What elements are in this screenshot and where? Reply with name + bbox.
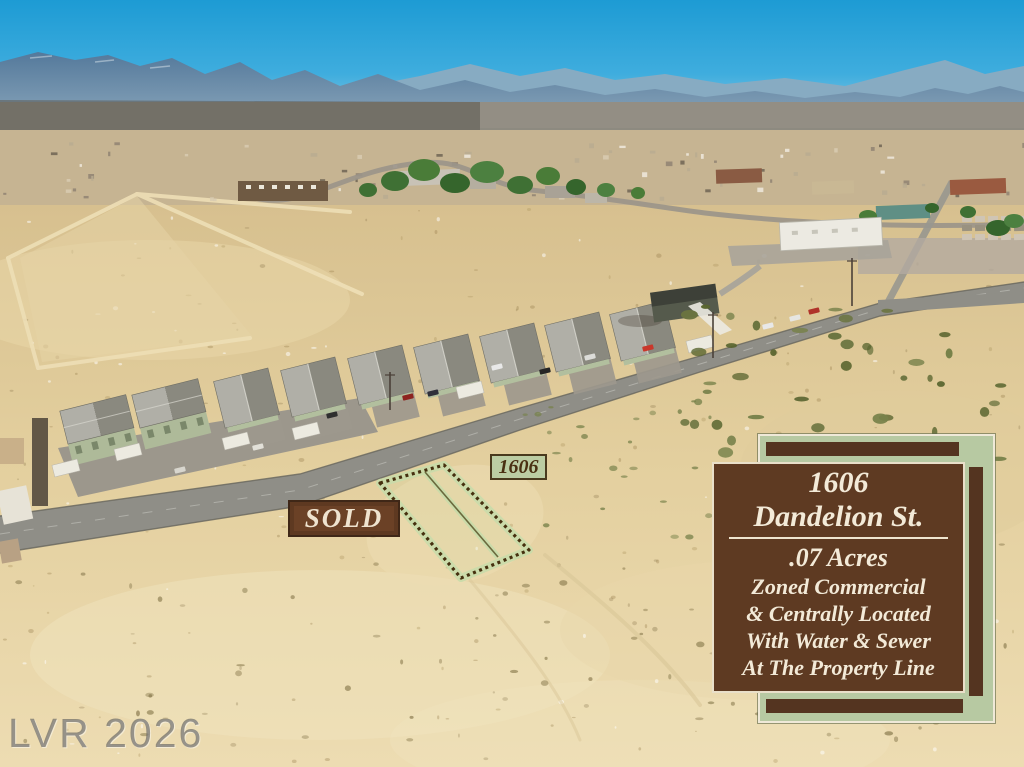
info-card-bar-top	[766, 442, 959, 456]
watermark: LVR 2026	[8, 710, 203, 757]
sold-label-text: SOLD	[305, 503, 384, 534]
parcel-number-label: 1606	[490, 454, 547, 480]
info-card-bar-bottom	[766, 699, 963, 713]
divider-rule	[729, 537, 948, 539]
detail-utilities-1: With Water & Sewer	[714, 627, 963, 654]
aerial-photo: LVR 2026 SOLD 1606 1606 Dandelion St. .0…	[0, 0, 1024, 767]
address-number: 1606	[714, 466, 963, 500]
detail-zoning: Zoned Commercial	[714, 573, 963, 600]
detail-utilities-2: At The Property Line	[714, 654, 963, 681]
detail-location: & Centrally Located	[714, 600, 963, 627]
sold-label: SOLD	[288, 500, 400, 537]
parcel-number-text: 1606	[499, 456, 539, 479]
address-street: Dandelion St.	[714, 500, 963, 534]
listing-info-card: 1606 Dandelion St. .07 Acres Zoned Comme…	[712, 462, 965, 693]
detail-acres: .07 Acres	[714, 543, 963, 573]
info-card-bar-right	[969, 467, 983, 696]
